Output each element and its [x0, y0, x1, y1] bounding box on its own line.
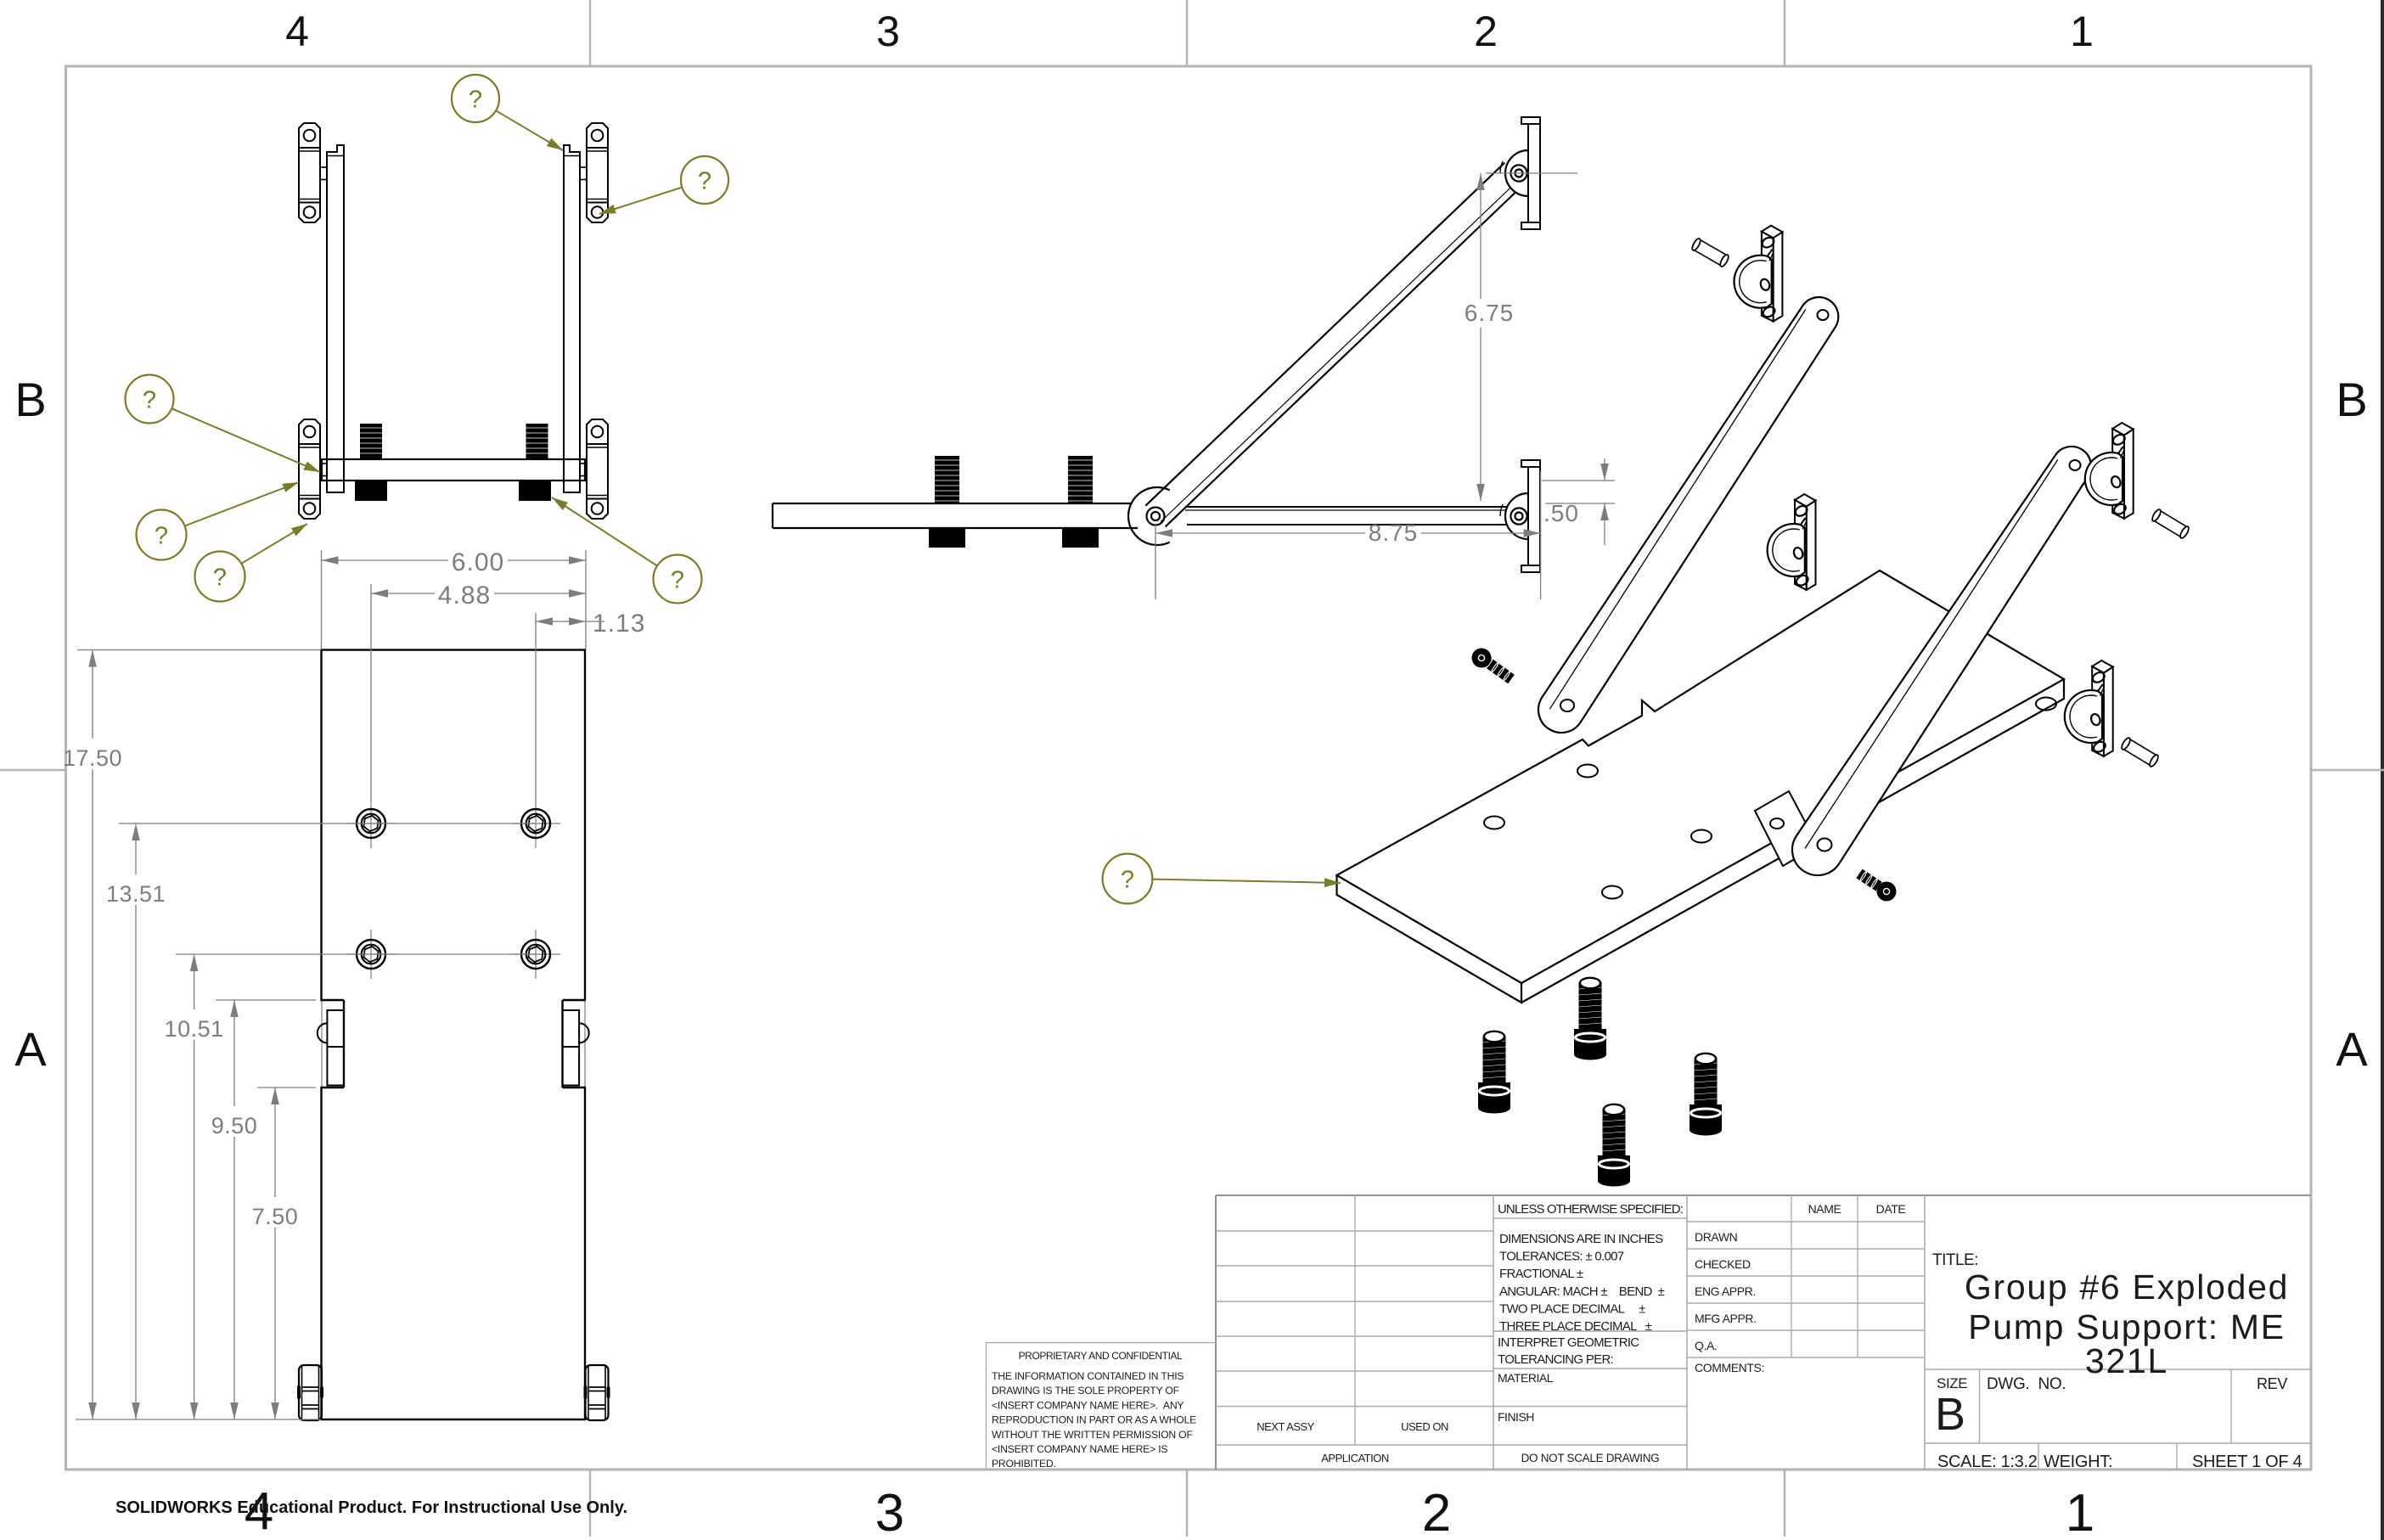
svg-text:13.51: 13.51 [106, 881, 166, 907]
svg-text:FRACTIONAL ±: FRACTIONAL ± [1499, 1267, 1583, 1281]
svg-text:TOLERANCES: ± 0.007: TOLERANCES: ± 0.007 [1499, 1250, 1624, 1264]
svg-text:ENG APPR.: ENG APPR. [1695, 1284, 1756, 1298]
svg-text:REV: REV [2257, 1375, 2287, 1392]
svg-text:9.50: 9.50 [211, 1113, 258, 1138]
svg-text:FINISH: FINISH [1498, 1410, 1534, 1424]
svg-text:DRAWING IS THE SOLE PROPERTY O: DRAWING IS THE SOLE PROPERTY OF [992, 1385, 1179, 1397]
svg-text:2: 2 [1422, 1484, 1451, 1540]
svg-text:17.50: 17.50 [63, 745, 122, 771]
svg-text:MATERIAL: MATERIAL [1498, 1371, 1554, 1385]
svg-text:SHEET 1 OF 4: SHEET 1 OF 4 [2192, 1453, 2302, 1471]
svg-text:<INSERT COMPANY NAME HERE>. A: <INSERT COMPANY NAME HERE>. ANY [992, 1399, 1184, 1411]
svg-text:6.75: 6.75 [1465, 300, 1515, 326]
svg-text:DO NOT SCALE DRAWING: DO NOT SCALE DRAWING [1521, 1452, 1660, 1464]
svg-text:WITHOUT THE WRITTEN PERMISSION: WITHOUT THE WRITTEN PERMISSION OF [992, 1429, 1193, 1441]
svg-text:?: ? [143, 387, 156, 414]
svg-text:4.88: 4.88 [438, 582, 491, 610]
svg-text:4: 4 [285, 8, 309, 55]
svg-text:NAME: NAME [1808, 1202, 1841, 1216]
svg-text:DRAWN: DRAWN [1695, 1230, 1737, 1244]
svg-text:?: ? [1121, 867, 1134, 894]
svg-text:TITLE:: TITLE: [1932, 1251, 1978, 1269]
svg-text:7.50: 7.50 [252, 1204, 299, 1229]
svg-text:THREE PLACE DECIMAL ±: THREE PLACE DECIMAL ± [1499, 1319, 1652, 1334]
svg-text:8.75: 8.75 [1369, 520, 1419, 546]
svg-text:REPRODUCTION IN PART OR AS A W: REPRODUCTION IN PART OR AS A WHOLE [992, 1414, 1196, 1426]
svg-text:DWG. NO.: DWG. NO. [1987, 1375, 2066, 1393]
svg-text:INTERPRET GEOMETRIC: INTERPRET GEOMETRIC [1498, 1335, 1639, 1350]
svg-text:A: A [2336, 1022, 2368, 1076]
svg-text:COMMENTS:: COMMENTS: [1695, 1361, 1764, 1374]
svg-text:APPLICATION: APPLICATION [1321, 1452, 1389, 1464]
svg-text:TWO PLACE DECIMAL ±: TWO PLACE DECIMAL ± [1499, 1301, 1645, 1316]
svg-text:?: ? [213, 565, 227, 592]
svg-text:B: B [1935, 1389, 1965, 1440]
svg-text:?: ? [469, 87, 482, 114]
svg-text:3: 3 [875, 1484, 904, 1540]
svg-text:THE INFORMATION CONTAINED IN T: THE INFORMATION CONTAINED IN THIS [992, 1370, 1184, 1382]
svg-text:WEIGHT:: WEIGHT: [2044, 1453, 2112, 1471]
svg-text:MFG APPR.: MFG APPR. [1695, 1312, 1757, 1325]
svg-text:DATE: DATE [1876, 1202, 1906, 1216]
svg-text:?: ? [698, 168, 711, 195]
svg-text:10.51: 10.51 [165, 1016, 224, 1042]
svg-text:PROPRIETARY AND CONFIDENTIAL: PROPRIETARY AND CONFIDENTIAL [1019, 1350, 1184, 1362]
svg-text:SCALE: 1:3.2: SCALE: 1:3.2 [1937, 1453, 2038, 1471]
svg-text:NEXT ASSY: NEXT ASSY [1257, 1420, 1314, 1433]
svg-text:6.00: 6.00 [452, 548, 504, 576]
svg-text:Q.A.: Q.A. [1695, 1339, 1717, 1352]
svg-text:1: 1 [2066, 1484, 2094, 1540]
svg-text:A: A [14, 1022, 47, 1076]
svg-text:TOLERANCING PER:: TOLERANCING PER: [1498, 1352, 1613, 1367]
svg-text:1.13: 1.13 [593, 610, 645, 638]
svg-text:B: B [2336, 373, 2367, 426]
svg-text:2: 2 [1474, 8, 1498, 55]
svg-text:USED ON: USED ON [1401, 1420, 1448, 1433]
svg-text:ANGULAR: MACH ± BEND ±: ANGULAR: MACH ± BEND ± [1499, 1284, 1665, 1299]
svg-text:<INSERT COMPANY NAME HERE> IS: <INSERT COMPANY NAME HERE> IS [992, 1443, 1167, 1455]
svg-text:PROHIBITED.: PROHIBITED. [992, 1458, 1056, 1470]
svg-text:3: 3 [876, 8, 900, 55]
svg-text:Group #6 Exploded: Group #6 Exploded [1965, 1267, 2289, 1307]
svg-text:SOLIDWORKS Educational Product: SOLIDWORKS Educational Product. For Inst… [115, 1498, 627, 1517]
svg-text:1: 1 [2070, 8, 2094, 55]
svg-text:UNLESS OTHERWISE SPECIFIED:: UNLESS OTHERWISE SPECIFIED: [1498, 1202, 1683, 1217]
svg-text:CHECKED: CHECKED [1695, 1257, 1751, 1271]
svg-text:321L: 321L [2085, 1341, 2168, 1380]
svg-text:?: ? [155, 523, 168, 550]
svg-text:.50: .50 [1543, 500, 1579, 526]
svg-text:DIMENSIONS ARE IN INCHES: DIMENSIONS ARE IN INCHES [1499, 1232, 1663, 1246]
svg-text:?: ? [671, 567, 684, 594]
svg-text:B: B [14, 373, 46, 426]
